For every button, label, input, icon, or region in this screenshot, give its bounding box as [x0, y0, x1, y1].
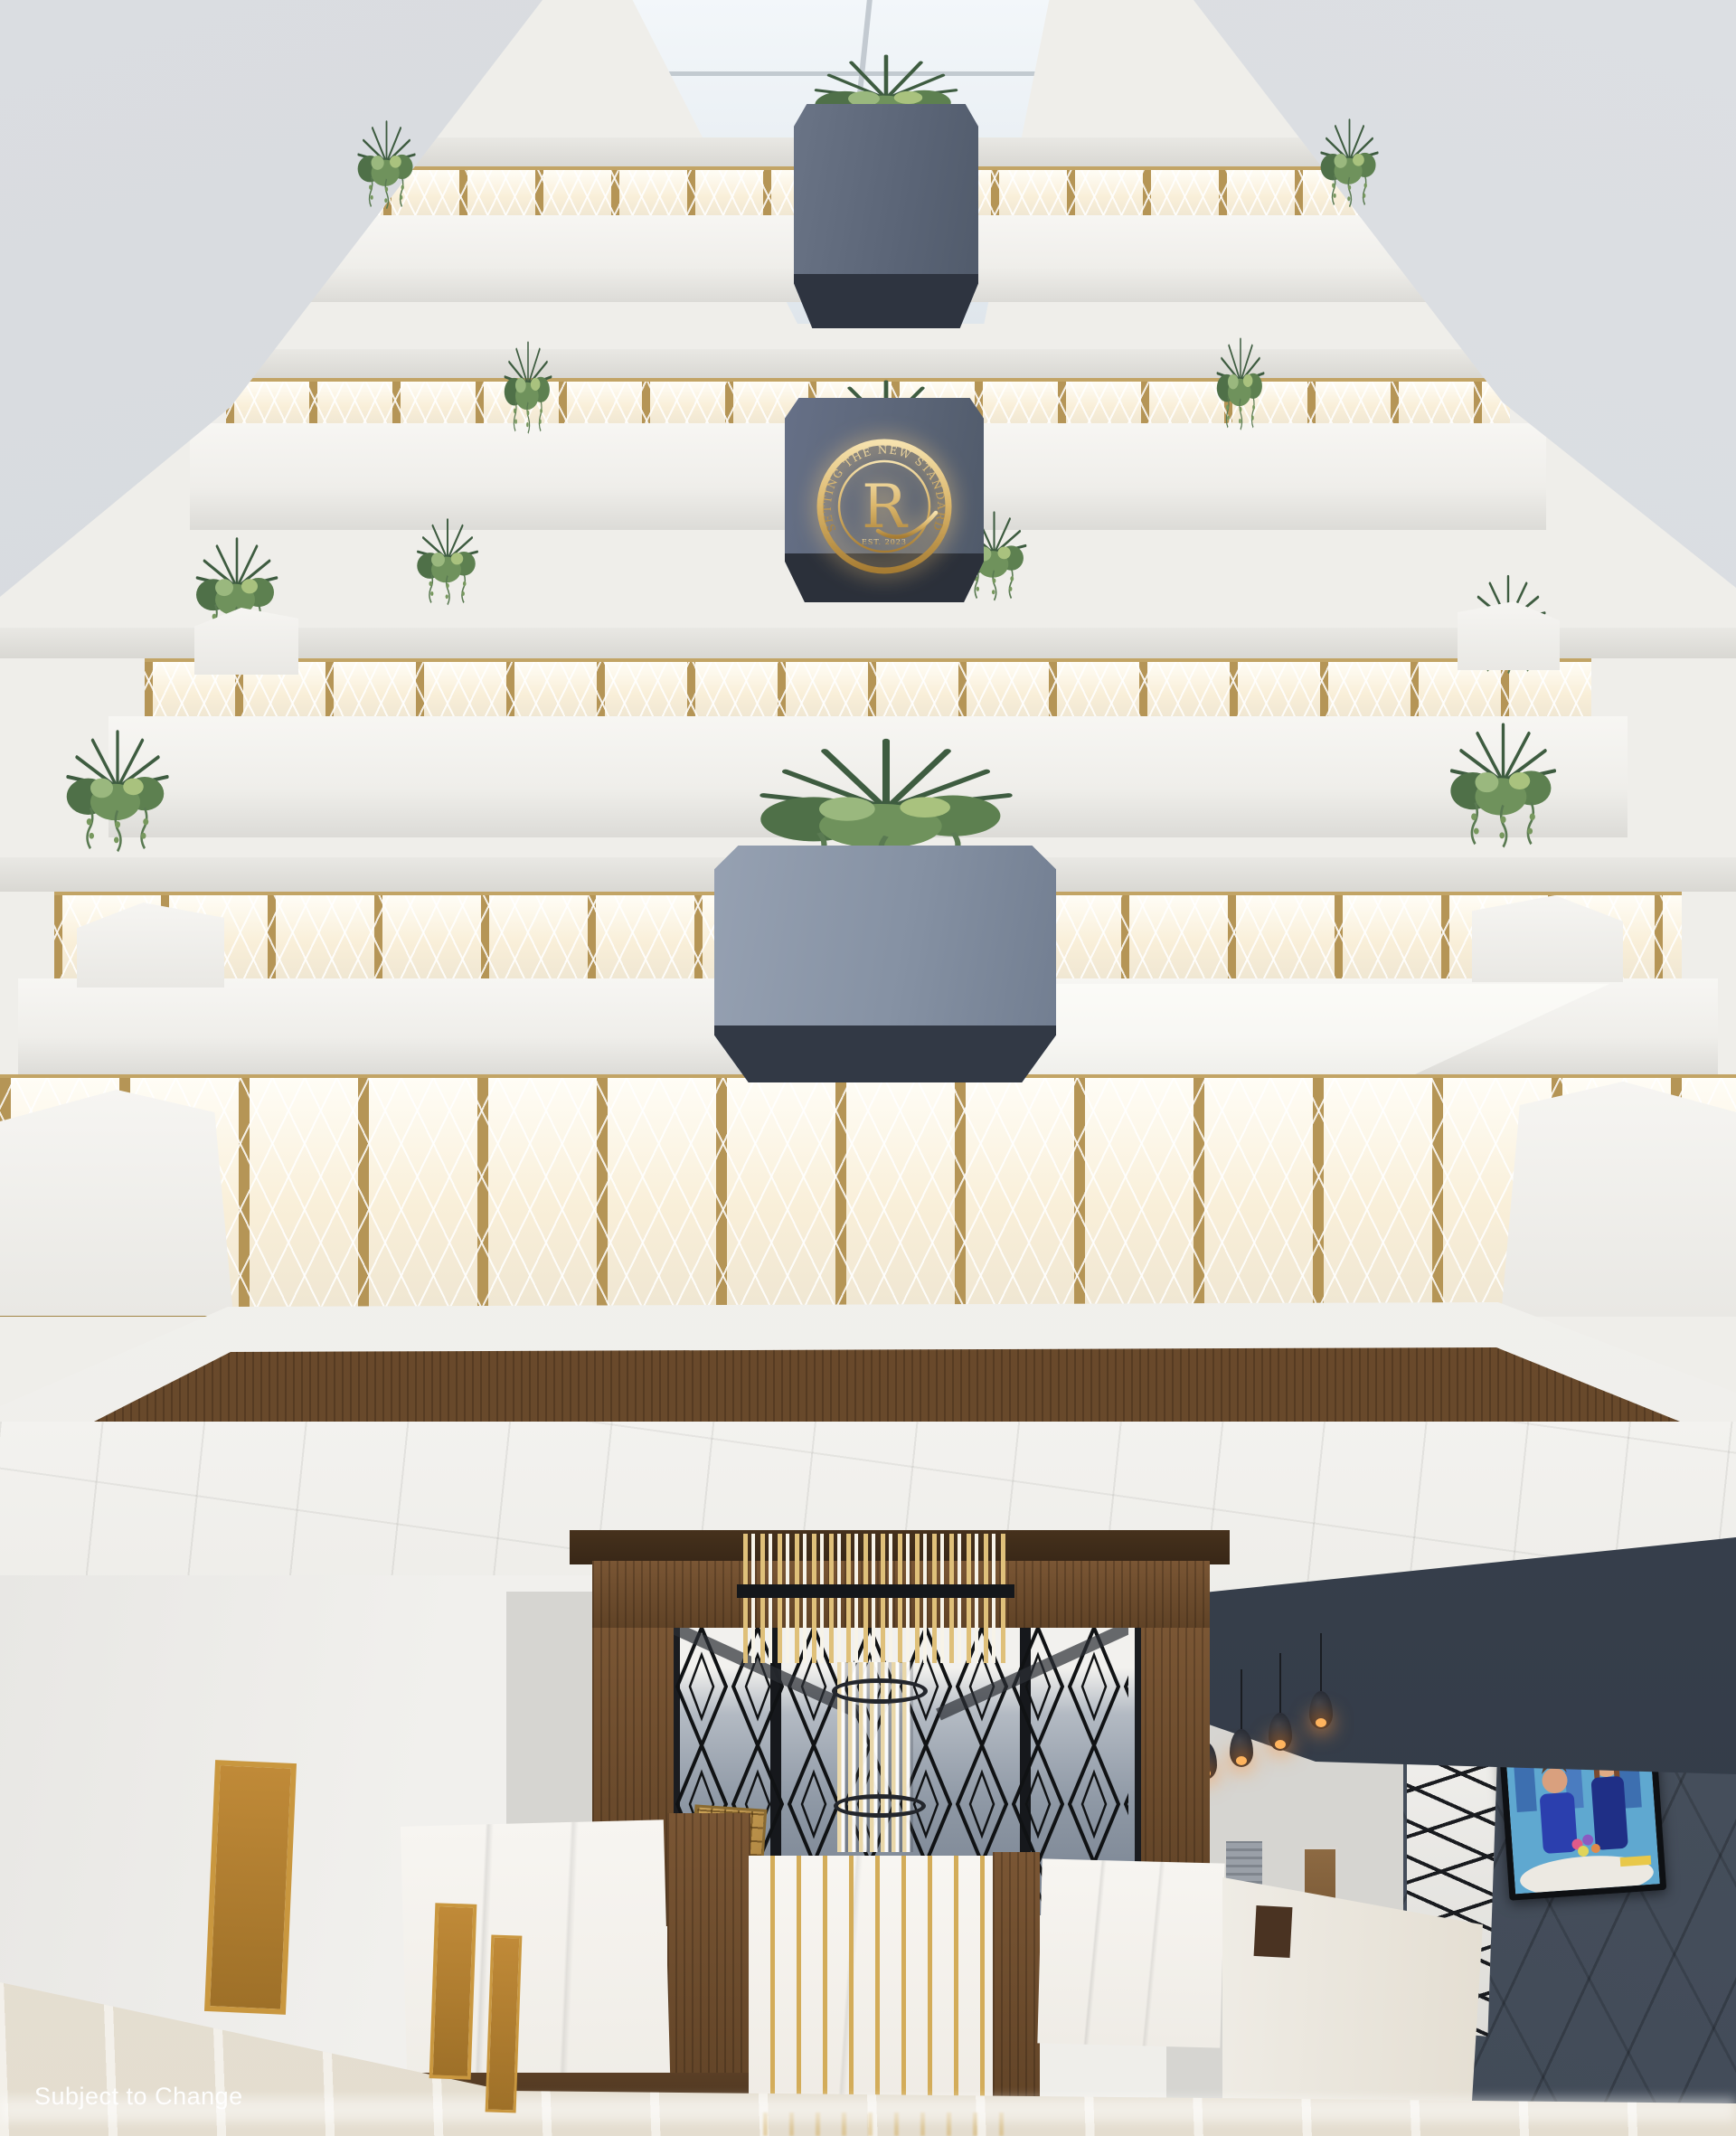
balcony-railing-floor4 — [145, 658, 1591, 723]
balcony-railing-main — [0, 1074, 1736, 1317]
desk-right-wood-side — [993, 1852, 1040, 2136]
balcony-plant — [496, 336, 560, 427]
chandelier-ring — [832, 1678, 928, 1704]
balcony-plant — [1433, 716, 1573, 838]
gold-door — [204, 1760, 297, 2015]
balcony-corner-planterbox — [1501, 1082, 1736, 1317]
balcony-plant — [407, 514, 488, 599]
floor-glow — [0, 2098, 1736, 2122]
balcony-corner-planterbox — [0, 1090, 233, 1316]
atrium-rendering: SETTING THE NEW STANDARD R EST. 2023 — [0, 0, 1736, 2136]
watermark-text: Subject to Change — [34, 2083, 243, 2111]
balcony-plant — [348, 116, 425, 203]
counter-recess — [1254, 1905, 1293, 1958]
brand-logo-badge: SETTING THE NEW STANDARD R EST. 2023 — [807, 430, 961, 583]
linear-chandelier-bar — [737, 1584, 1014, 1598]
hanging-planter-large — [714, 846, 1056, 1082]
balcony-plant — [1311, 114, 1388, 201]
reception-desk-right — [1037, 1858, 1224, 2047]
gold-door — [429, 1903, 477, 2079]
logo-established: EST. 2023 — [862, 538, 907, 546]
chandelier-ring — [834, 1794, 926, 1818]
balcony-plant — [50, 723, 185, 843]
hanging-planter-top — [794, 104, 978, 328]
linear-chandelier-rods-lower — [743, 1598, 1008, 1663]
logo-monogram: R — [862, 472, 909, 542]
gold-door — [486, 1934, 523, 2112]
balcony-plant — [1209, 333, 1272, 423]
reception-desk-center — [749, 1856, 996, 2114]
linear-chandelier-rods-upper — [743, 1534, 1008, 1585]
